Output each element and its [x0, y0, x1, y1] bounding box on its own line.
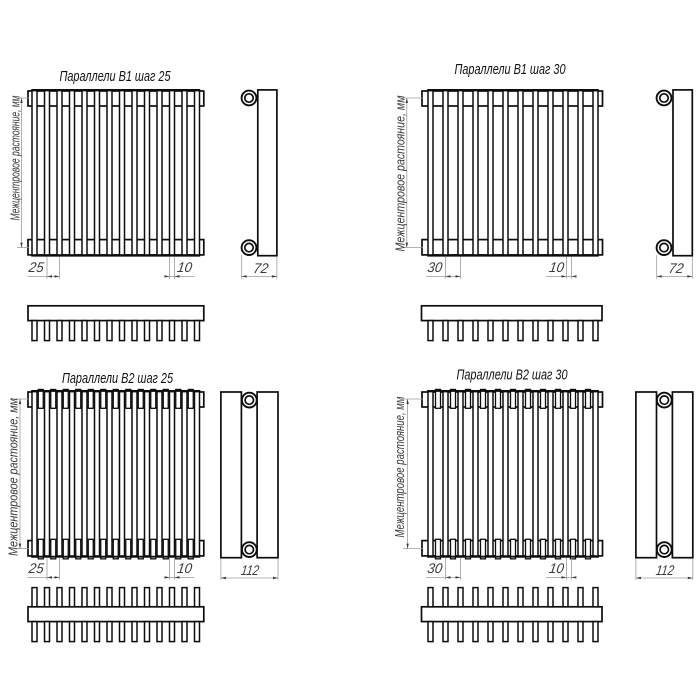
svg-text:10: 10	[176, 259, 193, 275]
svg-text:Параллели В1 шаг 25: Параллели В1 шаг 25	[60, 69, 172, 85]
svg-text:Параллели В1 шаг 30: Параллели В1 шаг 30	[455, 62, 566, 78]
svg-text:Межцентровое растояние, мм: Межцентровое растояние, мм	[7, 398, 21, 556]
svg-text:72: 72	[668, 260, 685, 276]
svg-text:72: 72	[252, 260, 269, 276]
svg-text:Межцентровое растояние, мм: Межцентровое растояние, мм	[393, 95, 407, 251]
svg-text:25: 25	[27, 259, 45, 275]
svg-text:10: 10	[548, 560, 565, 576]
svg-text:Параллели В2 шаг 25: Параллели В2 шаг 25	[62, 371, 174, 387]
svg-text:10: 10	[548, 259, 565, 275]
svg-text:112: 112	[655, 562, 675, 578]
svg-text:25: 25	[27, 560, 45, 576]
svg-text:Межцентровое растояние, мм: Межцентровое растояние, мм	[393, 396, 407, 537]
svg-text:112: 112	[240, 562, 260, 578]
svg-text:10: 10	[176, 560, 193, 576]
svg-text:Межцентровое растояние, мм: Межцентровое растояние, мм	[8, 95, 22, 220]
svg-text:30: 30	[426, 560, 443, 576]
svg-text:30: 30	[426, 259, 443, 275]
svg-text:Параллели В2 шаг 30: Параллели В2 шаг 30	[457, 368, 568, 384]
